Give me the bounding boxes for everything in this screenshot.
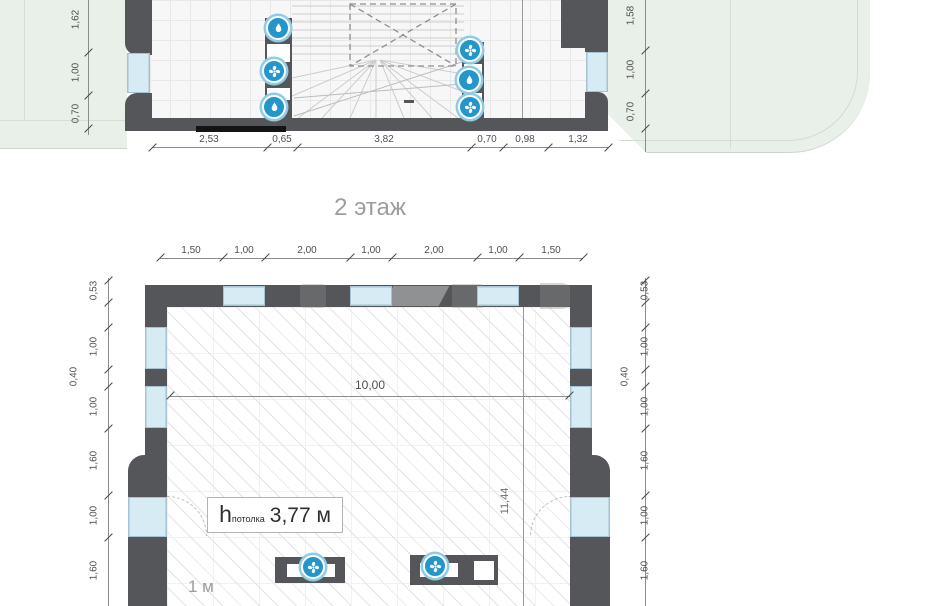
dim-label: 0,65	[262, 134, 302, 145]
dim-line	[152, 147, 608, 148]
lower-top-window	[477, 286, 519, 306]
floor-plan-canvas: 1,62 1,00 0,70 1,58 1,00 0,70 2,53 0,65 …	[0, 0, 926, 606]
fan-icon	[458, 95, 482, 119]
dim-label: 1,00	[640, 327, 651, 367]
lower-top-window	[223, 286, 265, 306]
roof-area-left	[0, 0, 127, 149]
upper-right-wall-top	[585, 0, 608, 52]
roof-area-left-line	[24, 0, 25, 120]
dim-label: 1,00	[224, 245, 264, 256]
dim-label: 2,00	[414, 245, 454, 256]
dim-label: 1,58	[626, 0, 637, 36]
ceiling-height-symbol: h	[219, 498, 232, 531]
upper-bottom-wall-dark-strip	[196, 126, 286, 132]
dim-label: 0,70	[467, 134, 507, 145]
fan-icon	[423, 554, 447, 578]
lower-top-window	[350, 286, 392, 306]
room-width-dim-line	[170, 396, 570, 397]
water-drop-icon	[266, 16, 290, 40]
fan-icon	[458, 38, 482, 62]
upper-right-window	[586, 52, 608, 92]
upper-left-wall-top	[125, 0, 152, 55]
ceiling-height-value: 3,77 м	[270, 504, 331, 528]
stair-direction-mark	[404, 100, 414, 103]
dim-label: 1,00	[89, 496, 100, 536]
dim-label: 1,00	[640, 387, 651, 427]
dim-label: 1,60	[640, 551, 651, 591]
lower-left-window	[145, 386, 167, 428]
dim-label: 0,53	[89, 271, 100, 311]
dim-label: 0,70	[626, 92, 637, 132]
roof-area-right-innerline	[619, 0, 858, 141]
upper-right-wall-bottom	[585, 92, 608, 131]
dim-label: 0,98	[505, 134, 545, 145]
lower-right-window	[570, 327, 592, 369]
dim-label: 0,70	[71, 94, 82, 134]
dim-label: 1,60	[89, 441, 100, 481]
lower-right-door-window	[570, 497, 610, 537]
dim-label: 0,40	[69, 357, 80, 397]
fan-icon	[262, 59, 286, 83]
dim-label: 1,60	[640, 441, 651, 481]
dim-label: 1,32	[558, 134, 598, 145]
upper-left-window	[127, 53, 150, 93]
dim-label: 0,40	[620, 357, 631, 397]
roof-area-right-line	[730, 0, 731, 148]
watermark-fragment	[383, 286, 450, 306]
watermark-fragment	[540, 283, 574, 309]
dim-label: 1,60	[89, 551, 100, 591]
water-drop-icon	[457, 68, 481, 92]
staircase	[292, 0, 464, 118]
dim-label: 1,50	[531, 245, 571, 256]
dim-label: 3,82	[364, 134, 404, 145]
water-drop-icon	[262, 95, 286, 119]
ceiling-height-subscript: потолка	[232, 514, 265, 524]
dim-label: 1,00	[478, 245, 518, 256]
dim-label: 1,00	[626, 50, 637, 90]
dim-label: 1,00	[640, 496, 651, 536]
dim-label: 1,50	[171, 245, 211, 256]
dim-label: 1,00	[89, 327, 100, 367]
fan-unit-notch	[474, 561, 494, 580]
dim-line	[88, 0, 89, 135]
lower-left-window	[145, 327, 167, 369]
room-depth-dim-line	[523, 307, 524, 606]
dim-label: 2,00	[287, 245, 327, 256]
room-width-label: 10,00	[330, 378, 410, 392]
dim-label: 1,00	[351, 245, 391, 256]
room-depth-label: 11,44	[499, 481, 511, 521]
roof-area-left-line2	[0, 120, 127, 121]
scale-note: 1 м	[188, 577, 214, 597]
ceiling-height-label: hпотолка3,77 м	[207, 497, 343, 533]
dim-label: 0,53	[640, 271, 651, 311]
dim-label: 1,00	[89, 387, 100, 427]
floor-title: 2 этаж	[148, 194, 592, 222]
lower-left-door-window	[128, 497, 167, 537]
fan-icon	[301, 555, 325, 579]
room-floor	[167, 307, 570, 606]
dim-label: 2,53	[189, 134, 229, 145]
dim-label: 1,00	[71, 53, 82, 93]
dim-label: 1,62	[71, 0, 82, 40]
watermark-fragment	[300, 284, 326, 308]
upper-partition-line	[522, 0, 523, 118]
